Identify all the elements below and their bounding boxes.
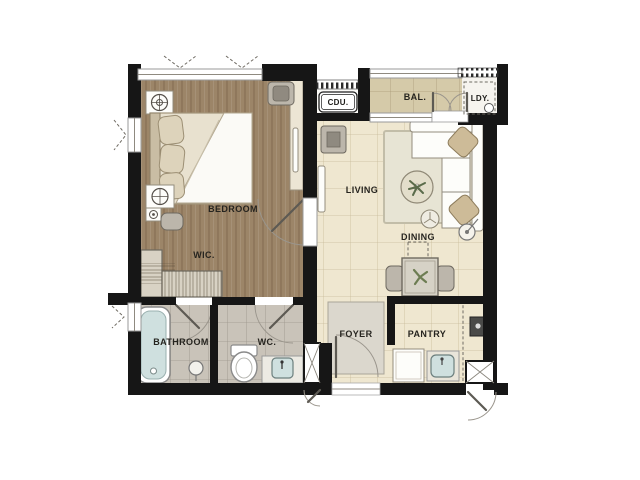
wall-segment bbox=[128, 383, 332, 395]
room-label-bedroom: BEDROOM bbox=[208, 204, 258, 214]
wall-segment bbox=[317, 113, 370, 121]
louver-vent-icon bbox=[317, 80, 358, 89]
entry-threshold bbox=[332, 383, 380, 395]
wall-segment bbox=[387, 296, 395, 345]
floor-plan-drawing: BEDROOM WIC. LIVING DINING BAL. CDU. LDY… bbox=[0, 0, 640, 480]
room-label-pantry: PANTRY bbox=[408, 329, 446, 339]
room-label-wc: WC. bbox=[258, 337, 277, 347]
wall-pier bbox=[108, 293, 128, 305]
room-label-laundry: LDY. bbox=[471, 94, 490, 103]
casement-window-icon bbox=[114, 118, 141, 152]
wall-segment bbox=[380, 383, 466, 395]
air-conditioner-icon bbox=[146, 91, 173, 114]
desk-chair-icon bbox=[161, 213, 183, 230]
wall-segment bbox=[293, 297, 317, 305]
kitchen-sink-icon bbox=[427, 351, 459, 381]
wall-segment bbox=[210, 305, 218, 383]
wall-shelf-icon bbox=[318, 166, 325, 212]
room-label-dining: DINING bbox=[401, 232, 435, 242]
side-stool-icon bbox=[421, 210, 439, 228]
room-label-balcony: BAL. bbox=[404, 92, 427, 102]
dining-chair-icon bbox=[436, 266, 454, 291]
wall-segment bbox=[303, 64, 317, 200]
room-label-living: LIVING bbox=[346, 185, 378, 195]
wall-segment bbox=[128, 64, 141, 390]
washing-machine-icon bbox=[485, 104, 494, 113]
sliding-glass-panel bbox=[370, 113, 432, 122]
bedroom-door-opening bbox=[303, 198, 317, 246]
washbasin-icon bbox=[262, 356, 303, 383]
balcony-railing bbox=[370, 69, 462, 78]
dining-chair-icon bbox=[386, 266, 404, 291]
wall-shelf-icon bbox=[293, 128, 298, 172]
room-label-cdu: CDU. bbox=[328, 98, 349, 107]
cdu-area bbox=[317, 80, 358, 112]
room-label-bathroom: BATHROOM bbox=[153, 337, 209, 347]
wall-segment bbox=[320, 343, 332, 383]
wall-segment bbox=[212, 297, 255, 305]
wall-segment bbox=[497, 64, 508, 125]
wall-segment bbox=[483, 113, 497, 390]
wall-segment bbox=[303, 246, 317, 343]
coffee-table-plant-icon bbox=[401, 171, 433, 203]
utility-shaft-icon bbox=[304, 343, 320, 406]
wall-segment bbox=[387, 296, 483, 304]
floor-plan-canvas: BEDROOM WIC. LIVING DINING BAL. CDU. LDY… bbox=[0, 0, 640, 480]
service-door-icon bbox=[466, 361, 496, 420]
room-label-wic: WIC. bbox=[193, 250, 215, 260]
toilet-icon bbox=[231, 345, 257, 382]
refrigerator-icon bbox=[393, 349, 424, 382]
casement-window-icon bbox=[138, 56, 262, 80]
room-label-foyer: FOYER bbox=[339, 329, 372, 339]
casement-window-icon bbox=[112, 303, 141, 331]
louver-vent-icon bbox=[458, 68, 498, 77]
